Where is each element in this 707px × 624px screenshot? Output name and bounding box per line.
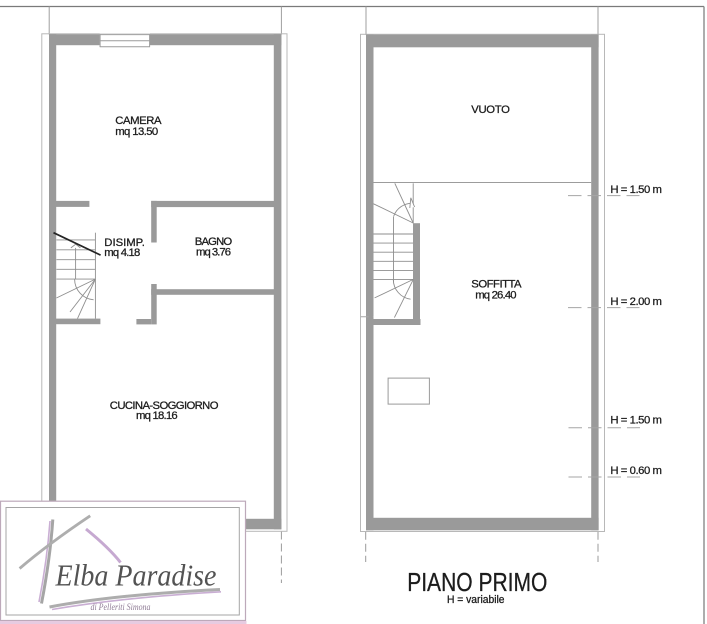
svg-text:H = variabile: H = variabile — [447, 594, 505, 606]
svg-text:H = 1.50 m: H = 1.50 m — [610, 414, 662, 426]
svg-text:PIANO PRIMO: PIANO PRIMO — [407, 569, 547, 597]
svg-text:mq 3.76: mq 3.76 — [196, 246, 231, 258]
svg-text:di Pelleriti Simona: di Pelleriti Simona — [91, 603, 151, 613]
svg-text:mq 18.16: mq 18.16 — [136, 410, 178, 422]
svg-text:H = 2.00 m: H = 2.00 m — [610, 296, 662, 308]
svg-text:mq 13.50: mq 13.50 — [115, 126, 158, 138]
svg-text:mq 4.18: mq 4.18 — [104, 247, 140, 259]
svg-text:mq 26.40: mq 26.40 — [475, 289, 516, 301]
svg-text:H = 1.50 m: H = 1.50 m — [610, 184, 662, 196]
svg-text:H = 0.60 m: H = 0.60 m — [610, 465, 662, 477]
svg-text:Elba Paradise: Elba Paradise — [55, 558, 217, 593]
svg-text:VUOTO: VUOTO — [471, 104, 510, 116]
